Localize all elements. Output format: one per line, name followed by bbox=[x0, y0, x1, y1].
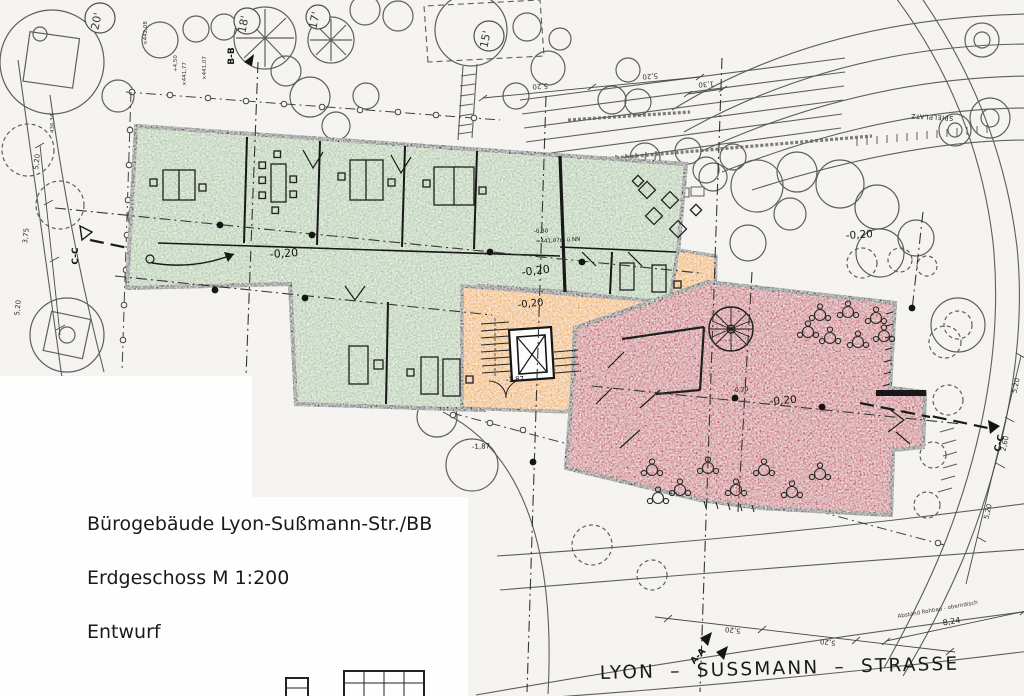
title-line-project: Bürogebäude Lyon-Sußmann-Str./BB bbox=[87, 513, 432, 535]
title-line-floor-scale: Erdgeschoss M 1:200 bbox=[87, 567, 289, 589]
scanned-floor-plan: 20' 18' 17' 15' bbox=[0, 0, 1024, 696]
plan-drawing: 20' 18' 17' 15' bbox=[0, 0, 1024, 696]
title-line-status: Entwurf bbox=[87, 621, 162, 643]
